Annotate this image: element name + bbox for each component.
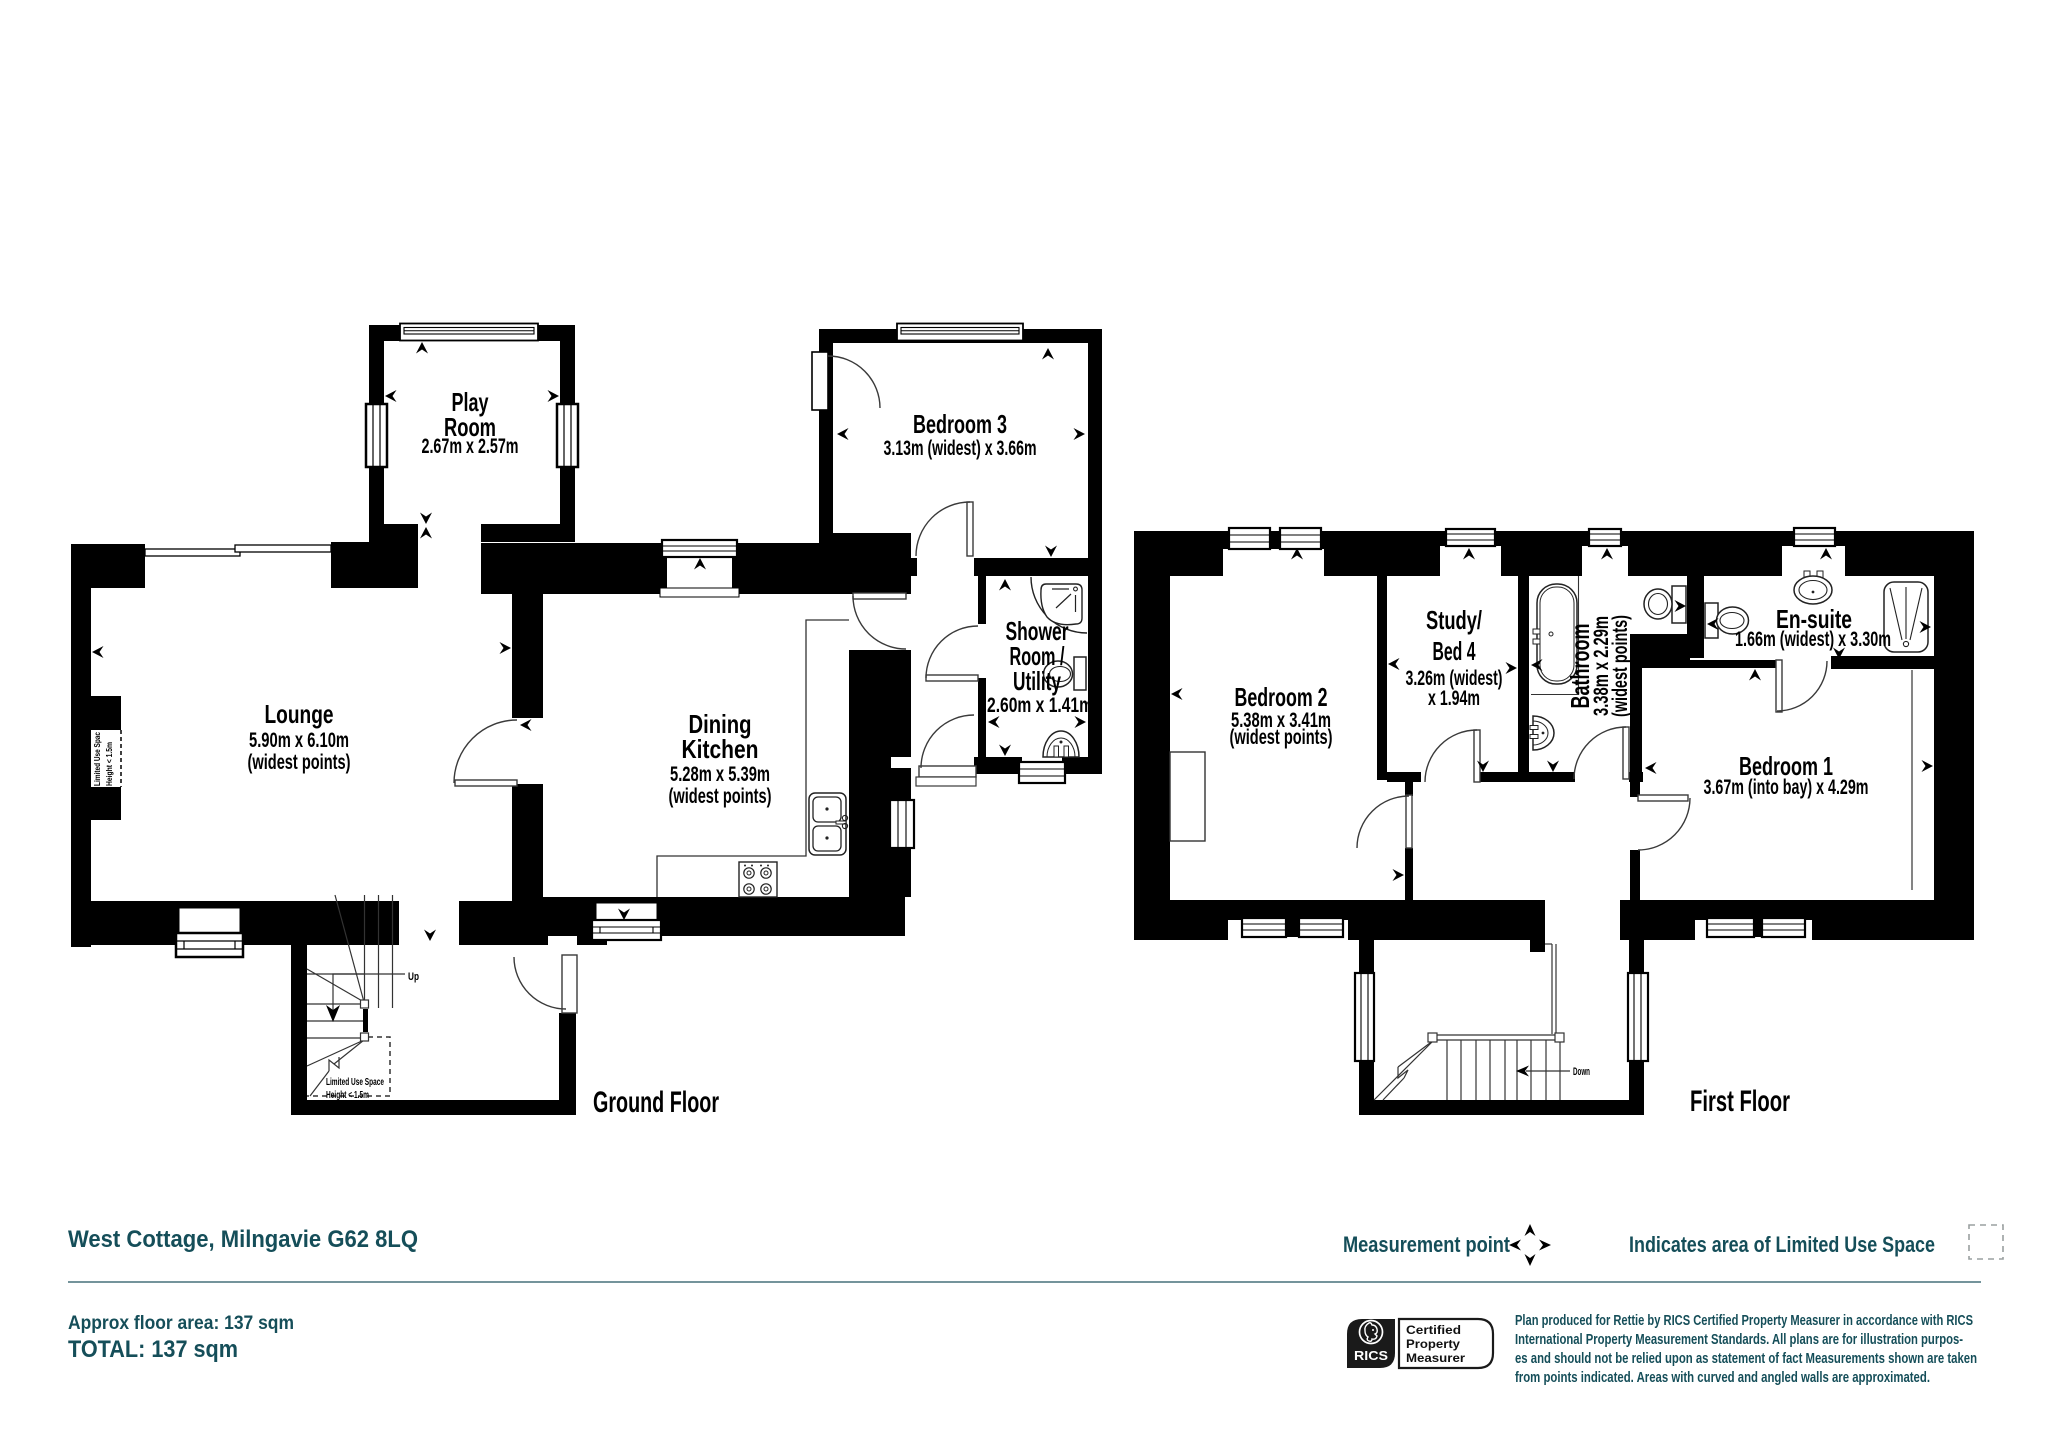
svg-text:Bedroom 2: Bedroom 2 — [1235, 682, 1328, 712]
svg-text:Measurer: Measurer — [1406, 1351, 1465, 1365]
svg-text:es and should not be relied up: es and should not be relied upon as stat… — [1515, 1351, 1977, 1367]
svg-text:Certified: Certified — [1406, 1323, 1461, 1337]
svg-text:Approx floor area: 137 sqm: Approx floor area: 137 sqm — [68, 1313, 294, 1334]
svg-text:Measurement point: Measurement point — [1343, 1232, 1511, 1257]
svg-text:Bed 4: Bed 4 — [1433, 636, 1476, 666]
svg-text:Indicates area of Limited Use: Indicates area of Limited Use Space — [1629, 1232, 1935, 1257]
svg-text:2.60m x 1.41m: 2.60m x 1.41m — [987, 694, 1093, 717]
svg-text:Property: Property — [1406, 1337, 1460, 1351]
svg-text:x 1.94m: x 1.94m — [1428, 687, 1480, 710]
svg-text:3.13m (widest) x 3.66m: 3.13m (widest) x 3.66m — [884, 437, 1037, 460]
svg-text:West Cottage, Milngavie G62 8L: West Cottage, Milngavie G62 8LQ — [68, 1226, 418, 1253]
svg-text:from points indicated. Areas w: from points indicated. Areas with curved… — [1515, 1370, 1930, 1386]
svg-text:Limited Use Space: Limited Use Space — [326, 1076, 384, 1088]
svg-text:3.67m (into bay) x 4.29m: 3.67m (into bay) x 4.29m — [1704, 776, 1869, 799]
svg-text:2.67m x 2.57m: 2.67m x 2.57m — [422, 435, 519, 458]
svg-text:Bedroom 3: Bedroom 3 — [913, 409, 1007, 439]
svg-text:Plan produced for Rettie by RI: Plan produced for Rettie by RICS Certifi… — [1515, 1313, 1973, 1329]
svg-text:TOTAL: 137 sqm: TOTAL: 137 sqm — [68, 1336, 238, 1363]
svg-text:Ground Floor: Ground Floor — [593, 1086, 719, 1119]
svg-text:First Floor: First Floor — [1690, 1085, 1790, 1118]
svg-text:Utility: Utility — [1013, 666, 1061, 696]
svg-text:(widest points): (widest points) — [1230, 726, 1333, 749]
svg-text:5.90m x 6.10m: 5.90m x 6.10m — [249, 729, 349, 752]
svg-text:Height < 1.5m: Height < 1.5m — [104, 742, 114, 786]
svg-text:Lounge: Lounge — [265, 699, 334, 729]
svg-text:Height < 1.5m: Height < 1.5m — [326, 1089, 369, 1101]
svg-text:(widest points): (widest points) — [669, 785, 772, 808]
svg-text:1.66m (widest) x 3.30m: 1.66m (widest) x 3.30m — [1735, 628, 1891, 651]
svg-text:Kitchen: Kitchen — [682, 734, 759, 764]
svg-text:(widest points): (widest points) — [1609, 615, 1632, 717]
svg-text:(widest points): (widest points) — [248, 751, 351, 774]
svg-text:RICS: RICS — [1354, 1349, 1388, 1363]
svg-text:International Property Measur: International Property Measurement Stand… — [1515, 1332, 1963, 1348]
svg-text:Study/: Study/ — [1426, 605, 1482, 635]
svg-text:5.28m x 5.39m: 5.28m x 5.39m — [670, 763, 770, 786]
svg-text:Limited Use Spac: Limited Use Spac — [92, 732, 102, 786]
svg-text:Down: Down — [1573, 1066, 1590, 1078]
svg-text:Up: Up — [408, 971, 419, 983]
